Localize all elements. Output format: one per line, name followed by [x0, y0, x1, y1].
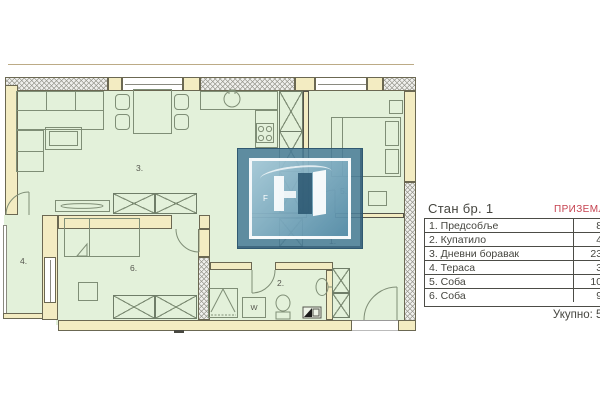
total-value: 59,: [596, 309, 600, 321]
room-name: 3. Дневни боравак: [429, 248, 519, 260]
door-arc-entrance: [364, 287, 397, 320]
kitchen-sink-icon: [224, 91, 240, 107]
logo-letter: F: [263, 194, 268, 203]
table-row: 6. Соба 9,: [425, 289, 600, 302]
room-label-3: 3.: [136, 163, 143, 173]
burner-icon: [266, 126, 271, 131]
total-area: Укупно: 59,: [424, 309, 600, 321]
room-label-4: 4.: [20, 256, 27, 266]
room-area: 8,: [573, 219, 600, 232]
toilet-tank-icon: [276, 312, 290, 319]
room-area: 10,: [573, 275, 600, 288]
table-row: 4. Тераса 3,: [425, 261, 600, 275]
blanket-fold-icon: [77, 244, 87, 256]
table-row: 5. Соба 10,: [425, 275, 600, 289]
room-label-2: 2.: [277, 278, 284, 288]
watermark-logo: F: [237, 148, 363, 249]
room-area: 4,: [573, 233, 600, 246]
total-label: Укупно:: [553, 309, 593, 321]
burner-icon: [258, 135, 263, 140]
tv-icon: [61, 204, 103, 209]
table-row: 1. Предсобље 8,: [425, 219, 600, 233]
logo-beam-icon: [284, 191, 296, 198]
room-name: 1. Предсобље: [429, 220, 498, 232]
table-row: 3. Дневни боравак 23,: [425, 247, 600, 261]
washer-label: W: [242, 303, 266, 312]
room-label-6: 6.: [130, 263, 137, 273]
room-name: 5. Соба: [429, 276, 466, 288]
shower-lines-icon: [211, 289, 235, 312]
burner-icon: [266, 135, 271, 140]
bath-sink-icon: [316, 279, 328, 296]
door-arc-terrace: [6, 192, 29, 215]
logo-frame: F: [249, 158, 351, 239]
boiler-cabinet-icon: [303, 307, 321, 318]
logo-doorway-icon: [298, 173, 312, 214]
rooms-table: 1. Предсобље 8, 2. Купатило 4, 3. Дневни…: [424, 218, 600, 307]
apartment-title: Стан бр. 1: [428, 201, 493, 216]
room-area: 23,: [573, 247, 600, 260]
room-name: 6. Соба: [429, 290, 466, 302]
door-arc-room6: [176, 229, 199, 252]
logo-pillar-icon: [274, 176, 284, 211]
toilet-icon: [276, 295, 290, 311]
room-area: 3,: [573, 261, 600, 274]
floor-label: ПРИЗЕМЉЕ: [554, 204, 600, 215]
floor-plan-sheet: 1. 2. 3. 4. 5. 6. W F Стан бр. 1 ПРИЗЕМЉ…: [0, 0, 600, 400]
door-arc-bath: [252, 270, 275, 293]
room-area: 9,: [573, 289, 600, 302]
logo-open-door-icon: [313, 170, 326, 216]
burner-icon: [258, 126, 263, 131]
table-row: 2. Купатило 4,: [425, 233, 600, 247]
room-name: 2. Купатило: [429, 234, 486, 246]
room-name: 4. Тераса: [429, 262, 475, 274]
